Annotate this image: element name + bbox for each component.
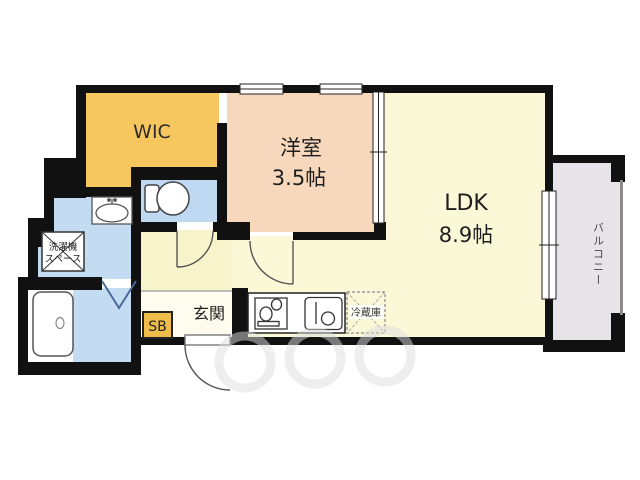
- fridge-label: 冷蔵庫: [351, 306, 381, 319]
- floor-plan-page: 洗濯機 スペース: [0, 0, 640, 480]
- window-ldk-balcony: [539, 191, 559, 299]
- kitchen-counter: [248, 293, 345, 333]
- label-balcony: バルコニー: [592, 222, 605, 287]
- bathtub-icon: [33, 292, 73, 356]
- label-entrance: 玄関: [193, 304, 225, 323]
- room-bathroom-wet: [73, 288, 131, 362]
- wall-kitchen-stub: [232, 288, 248, 337]
- sliding-door-western-ldk: [370, 92, 387, 223]
- wall-bottom-main: [230, 337, 553, 345]
- washer-space-label-2: スペース: [45, 254, 82, 265]
- wall-ldk-right-upper: [545, 85, 553, 192]
- wall-wic-western-divider: [217, 123, 227, 222]
- room-western: [227, 93, 378, 232]
- label-wic: WIC: [133, 121, 171, 143]
- shoe-box-label: SB: [148, 319, 167, 335]
- floor-plan-svg: 洗濯機 スペース: [0, 0, 640, 480]
- wall-ldk-right-lower: [545, 298, 553, 345]
- washer-space-label-1: 洗濯機: [49, 241, 78, 253]
- window-western-top-2: [320, 84, 362, 94]
- wall-western-corner-block: [217, 222, 250, 240]
- label-ldk-area: 8.9帖: [439, 223, 493, 247]
- wall-bath-top: [18, 277, 102, 290]
- wall-bath-bottom: [18, 362, 141, 375]
- wall-toilet-bottom-left: [137, 222, 177, 232]
- toilet-icon: [145, 182, 189, 215]
- wall-balcony-top: [553, 155, 613, 163]
- wall-toilet-top: [137, 167, 227, 180]
- room-wic-lower: [86, 167, 137, 189]
- washer-space-box: 洗濯機 スペース: [42, 232, 84, 271]
- wall-top: [76, 85, 553, 93]
- wall-balcony-bottom: [543, 340, 625, 352]
- label-western-area: 3.5帖: [272, 166, 326, 190]
- wall-bath-left: [18, 277, 28, 375]
- label-western-room: 洋室: [280, 136, 322, 160]
- wall-washroom-top: [44, 187, 139, 197]
- wall-divider-bottom-block: [374, 222, 386, 240]
- shoe-box: SB: [143, 312, 172, 338]
- window-western-top-1: [240, 84, 283, 94]
- vanity-sink-icon: [92, 197, 132, 224]
- label-ldk: LDK: [444, 191, 488, 216]
- room-ldk: [378, 93, 547, 341]
- wall-western-bottom: [293, 232, 386, 240]
- balcony-railing-line: [620, 180, 623, 315]
- wall-balcony-corner-tr: [611, 155, 625, 182]
